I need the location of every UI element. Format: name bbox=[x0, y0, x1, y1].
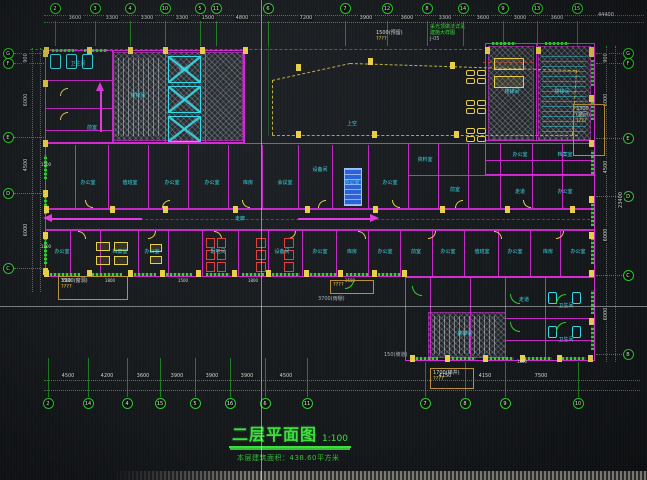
annotation-text: ???? bbox=[333, 282, 371, 288]
drawing-subtitle: 本层建筑面积：438.60平方米 bbox=[237, 453, 351, 463]
room-label: 办公室 bbox=[557, 189, 572, 195]
room-label: 库房 bbox=[543, 249, 553, 255]
room-label: 办公室 bbox=[204, 180, 219, 186]
annotation-text: J-05 bbox=[430, 36, 465, 42]
room-label: 办公室 bbox=[440, 249, 455, 255]
annotation-layer: 办公室值班室办公室办公室库房会议室设备间办公室办公室资料室前室办公室档案室走道办… bbox=[0, 0, 647, 480]
room-label: 上空 bbox=[347, 121, 357, 127]
room-label: 办公室 bbox=[312, 249, 327, 255]
photo-desk-edge bbox=[112, 471, 647, 480]
wall-dimension: 1500 bbox=[40, 244, 52, 250]
room-label: 值班室 bbox=[474, 249, 489, 255]
annotation-note: 1500(预留)???? bbox=[376, 30, 403, 42]
room-label: 办公室 bbox=[164, 180, 179, 186]
annotation-text: ???? bbox=[433, 376, 471, 382]
annotation-text: ???? bbox=[376, 36, 403, 42]
wall-dimension: 1800 bbox=[516, 359, 528, 365]
room-label: 办公室 bbox=[570, 249, 585, 255]
room-label: 会议室 bbox=[277, 180, 292, 186]
annotation-note: 3300(窗洞)???? bbox=[58, 276, 128, 300]
annotation-note: 3300(窗间)???? bbox=[573, 104, 605, 156]
annotation-text: 3700(雨棚) bbox=[318, 296, 345, 302]
annotation-note: 1700(梯井)???? bbox=[430, 368, 474, 389]
wall-dimension: 1800 bbox=[247, 278, 259, 284]
room-label: 走道 bbox=[515, 189, 525, 195]
title-block: 二层平面图 1:100 本层建筑面积：438.60平方米 bbox=[229, 421, 351, 463]
drawing-title: 二层平面图 bbox=[232, 421, 317, 445]
room-label: 办公室 bbox=[507, 249, 522, 255]
annotation-text: ???? bbox=[61, 284, 125, 290]
wall-dimension: 1500 bbox=[40, 162, 52, 168]
room-label: 档案室 bbox=[557, 152, 572, 158]
room-label: 办公室 bbox=[512, 152, 527, 158]
cad-screenshot-photo: 2341051167128149131536003300330033001500… bbox=[0, 0, 647, 480]
drawing-scale: 1:100 bbox=[322, 434, 348, 445]
room-label: 前室 bbox=[87, 125, 97, 131]
room-label: 前室 bbox=[411, 249, 421, 255]
annotation-text: 150(坡道) bbox=[384, 352, 407, 358]
room-label: 办公室 bbox=[377, 249, 392, 255]
room-label: 办公室 bbox=[80, 180, 95, 186]
room-label: 值班室 bbox=[122, 180, 137, 186]
room-label: 楼梯间 bbox=[554, 89, 569, 95]
annotation-note: 3700(雨棚) bbox=[318, 296, 345, 302]
room-label: 走道 bbox=[519, 297, 529, 303]
room-label: 办公室 bbox=[344, 180, 359, 186]
room-label: 电梯 bbox=[179, 67, 189, 73]
annotation-text: 44400 bbox=[598, 12, 614, 18]
annotation-note: 150(坡道) bbox=[384, 352, 407, 358]
room-label: 办公室 bbox=[144, 249, 159, 255]
photo-crease-horizontal bbox=[0, 306, 647, 307]
annotation-text: ???? bbox=[576, 118, 602, 124]
room-label: 配电间 bbox=[210, 249, 225, 255]
room-label: 设备间 bbox=[312, 167, 327, 173]
room-label: 办公室 bbox=[382, 180, 397, 186]
room-label: 办公室 bbox=[54, 249, 69, 255]
room-label: 走廊 bbox=[235, 216, 245, 222]
annotation-note: 采光顶做法详见建施大样图J-05 bbox=[430, 24, 465, 42]
room-label: 楼梯间 bbox=[130, 93, 145, 99]
room-label: 卫生间 bbox=[558, 337, 573, 343]
room-label: 库房 bbox=[243, 180, 253, 186]
room-label: 库房 bbox=[347, 249, 357, 255]
room-label: 档案室 bbox=[112, 249, 127, 255]
wall-dimension: 1500 bbox=[177, 278, 189, 284]
room-label: 楼梯间 bbox=[457, 331, 472, 337]
room-label: 设备间 bbox=[274, 249, 289, 255]
room-label: 前室 bbox=[450, 187, 460, 193]
room-label: 楼梯间 bbox=[504, 89, 519, 95]
room-label: 资料室 bbox=[417, 157, 432, 163]
annotation-note: ???? bbox=[330, 280, 374, 294]
room-label: 卫生间 bbox=[70, 61, 85, 67]
photo-crease-vertical bbox=[261, 0, 262, 480]
annotation-note: 44400 bbox=[598, 12, 614, 18]
